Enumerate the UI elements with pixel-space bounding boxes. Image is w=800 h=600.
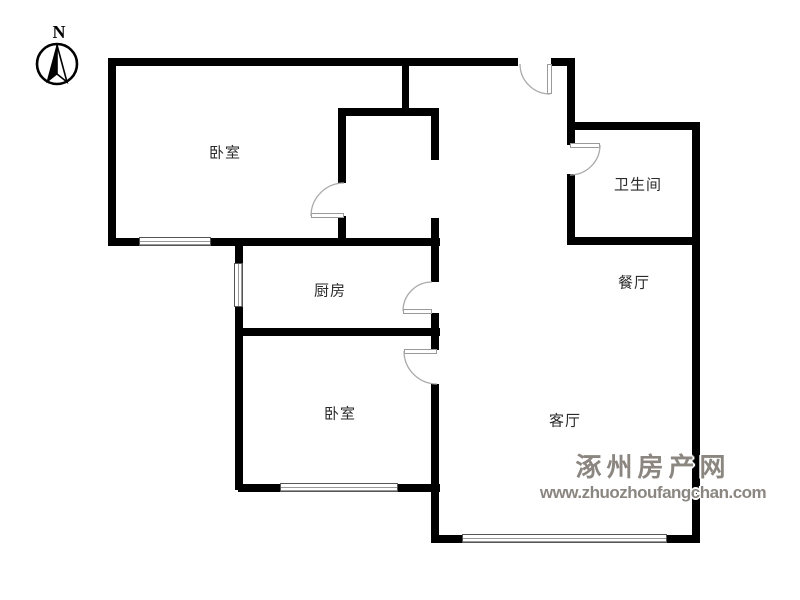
wall-segment: [431, 384, 439, 543]
watermark: 涿州房产网 www.zhuozhoufangchan.com: [528, 453, 778, 502]
bedroom-2-door-leaf: [404, 349, 437, 354]
entrance-door-leaf: [547, 64, 552, 94]
window-pane-line: [241, 264, 242, 306]
bedroom-1-door-swing-arc: [311, 183, 344, 216]
entrance-door-swing-arc: [520, 64, 550, 94]
wall-segment: [567, 237, 700, 245]
door-arcs-layer: [0, 0, 800, 600]
room-label-bathroom: 卫生间: [614, 174, 662, 195]
room-label-kitchen: 厨房: [314, 280, 346, 301]
kitchen-door-leaf: [403, 309, 432, 314]
window-pane-line: [281, 490, 397, 491]
window: [139, 237, 211, 246]
compass-icon: [30, 38, 88, 90]
wall-segment: [108, 58, 116, 246]
bathroom-door-swing-arc: [570, 145, 600, 175]
window-pane-line: [140, 241, 210, 242]
floor-plan-canvas: N 卧室卫生间厨房餐厅卧室客厅 涿州房产网 www.zhuozhoufangch…: [0, 0, 800, 600]
wall-segment: [338, 108, 438, 116]
bathroom-door-leaf: [570, 143, 600, 148]
wall-segment: [235, 328, 440, 336]
window-pane-line: [463, 538, 666, 539]
room-label-living: 客厅: [549, 410, 581, 431]
bedroom-2-door-swing-arc: [404, 351, 437, 384]
compass: N: [30, 22, 88, 94]
window: [462, 534, 667, 543]
wall-segment: [338, 216, 346, 246]
room-label-bedroom-1: 卧室: [209, 142, 241, 163]
wall-segment: [431, 218, 439, 282]
wall-segment: [338, 108, 346, 183]
wall-segment: [567, 174, 575, 245]
window-pane-line: [463, 541, 666, 542]
kitchen-door-swing-arc: [403, 282, 432, 311]
window-pane-line: [281, 487, 397, 488]
wall-segment: [567, 58, 575, 130]
window: [234, 263, 243, 307]
room-label-bedroom-2: 卧室: [324, 403, 356, 424]
wall-segment: [431, 108, 439, 160]
window-pane-line: [238, 264, 239, 306]
wall-segment: [108, 58, 518, 66]
window: [280, 483, 398, 492]
window-pane-line: [140, 244, 210, 245]
room-label-dining: 餐厅: [618, 272, 650, 293]
bedroom-1-door-leaf: [311, 213, 344, 218]
wall-segment: [567, 122, 700, 130]
watermark-site-url: www.zhuozhoufangchan.com: [528, 483, 778, 503]
watermark-site-name: 涿州房产网: [528, 453, 778, 483]
